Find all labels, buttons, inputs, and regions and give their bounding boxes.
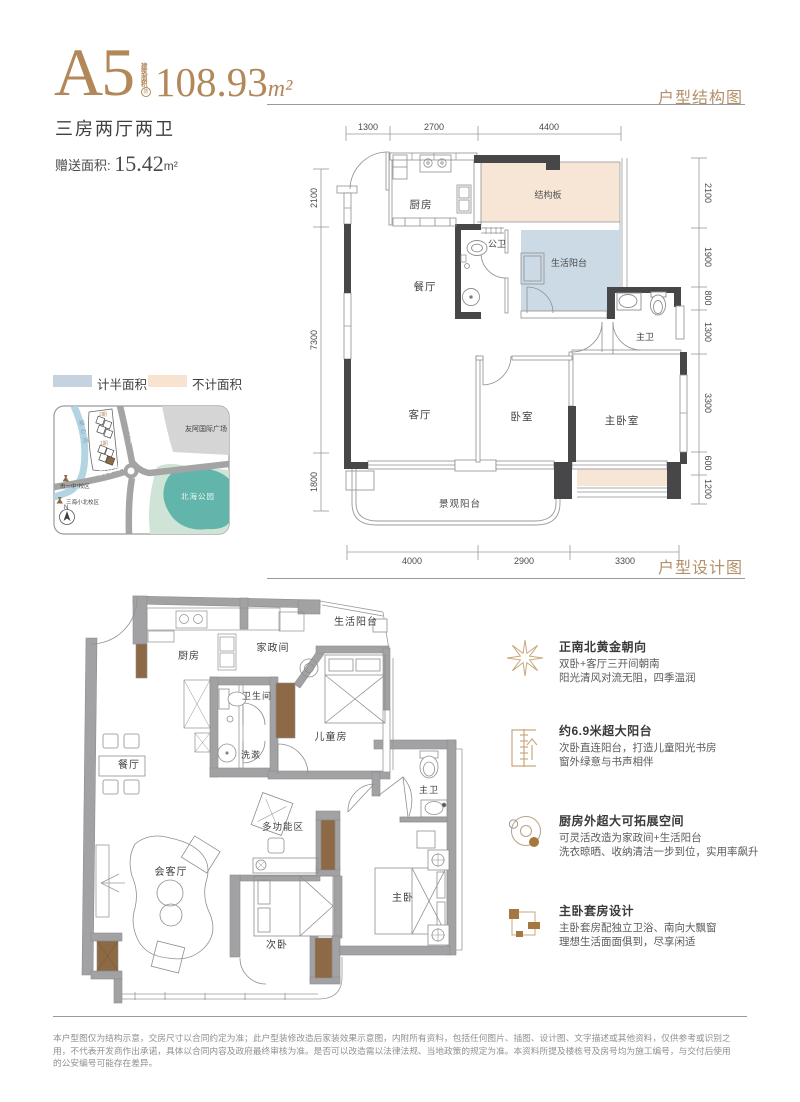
svg-text:1800: 1800 — [309, 472, 319, 492]
svg-text:多功能区: 多功能区 — [262, 821, 304, 833]
svg-text:景观阳台: 景观阳台 — [439, 498, 481, 510]
svg-text:2100: 2100 — [703, 183, 713, 203]
svg-text:家政间: 家政间 — [257, 641, 290, 654]
svg-text:主卧室: 主卧室 — [605, 414, 640, 427]
svg-text:厨房: 厨房 — [410, 198, 433, 211]
svg-text:1300: 1300 — [358, 122, 378, 132]
svg-text:4400: 4400 — [539, 122, 559, 132]
svg-text:次卧: 次卧 — [266, 938, 288, 951]
svg-text:客厅: 客厅 — [409, 408, 432, 421]
svg-text:2900: 2900 — [514, 556, 534, 566]
svg-text:会客厅: 会客厅 — [155, 865, 188, 878]
svg-text:主卫: 主卫 — [419, 784, 439, 795]
svg-text:结构板: 结构板 — [534, 189, 561, 200]
svg-text:公卫: 公卫 — [488, 239, 506, 249]
svg-text:市一中*校区: 市一中*校区 — [60, 482, 90, 490]
svg-text:1900: 1900 — [703, 247, 713, 267]
svg-text:友阿国际广场: 友阿国际广场 — [185, 424, 227, 433]
svg-text:1200: 1200 — [703, 479, 713, 499]
svg-text:三海小北校区: 三海小北校区 — [66, 498, 100, 506]
svg-text:餐厅: 餐厅 — [118, 758, 140, 771]
svg-text:儿童房: 儿童房 — [315, 730, 348, 743]
svg-text:卧室: 卧室 — [511, 410, 534, 423]
svg-text:厨房: 厨房 — [178, 649, 200, 662]
svg-text:生活阳台: 生活阳台 — [551, 257, 587, 268]
svg-text:7300: 7300 — [309, 330, 319, 350]
svg-text:3300: 3300 — [615, 556, 635, 566]
svg-text:2700: 2700 — [424, 122, 444, 132]
svg-text:餐厅: 餐厅 — [414, 280, 437, 293]
svg-text:洗漱: 洗漱 — [241, 749, 261, 760]
svg-text:2100: 2100 — [309, 188, 319, 208]
svg-text:1300: 1300 — [703, 322, 713, 342]
svg-text:2期: 2期 — [99, 412, 107, 418]
svg-text:3300: 3300 — [703, 393, 713, 413]
svg-text:主卧: 主卧 — [392, 891, 414, 904]
svg-text:北海公园: 北海公园 — [181, 491, 215, 501]
svg-text:4000: 4000 — [402, 556, 422, 566]
svg-text:主卫: 主卫 — [636, 331, 654, 342]
svg-text:600: 600 — [703, 455, 713, 470]
svg-text:卫生间: 卫生间 — [242, 690, 272, 701]
svg-text:800: 800 — [703, 290, 713, 305]
svg-text:1期: 1期 — [100, 441, 108, 447]
svg-text:生活阳台: 生活阳台 — [334, 615, 378, 628]
